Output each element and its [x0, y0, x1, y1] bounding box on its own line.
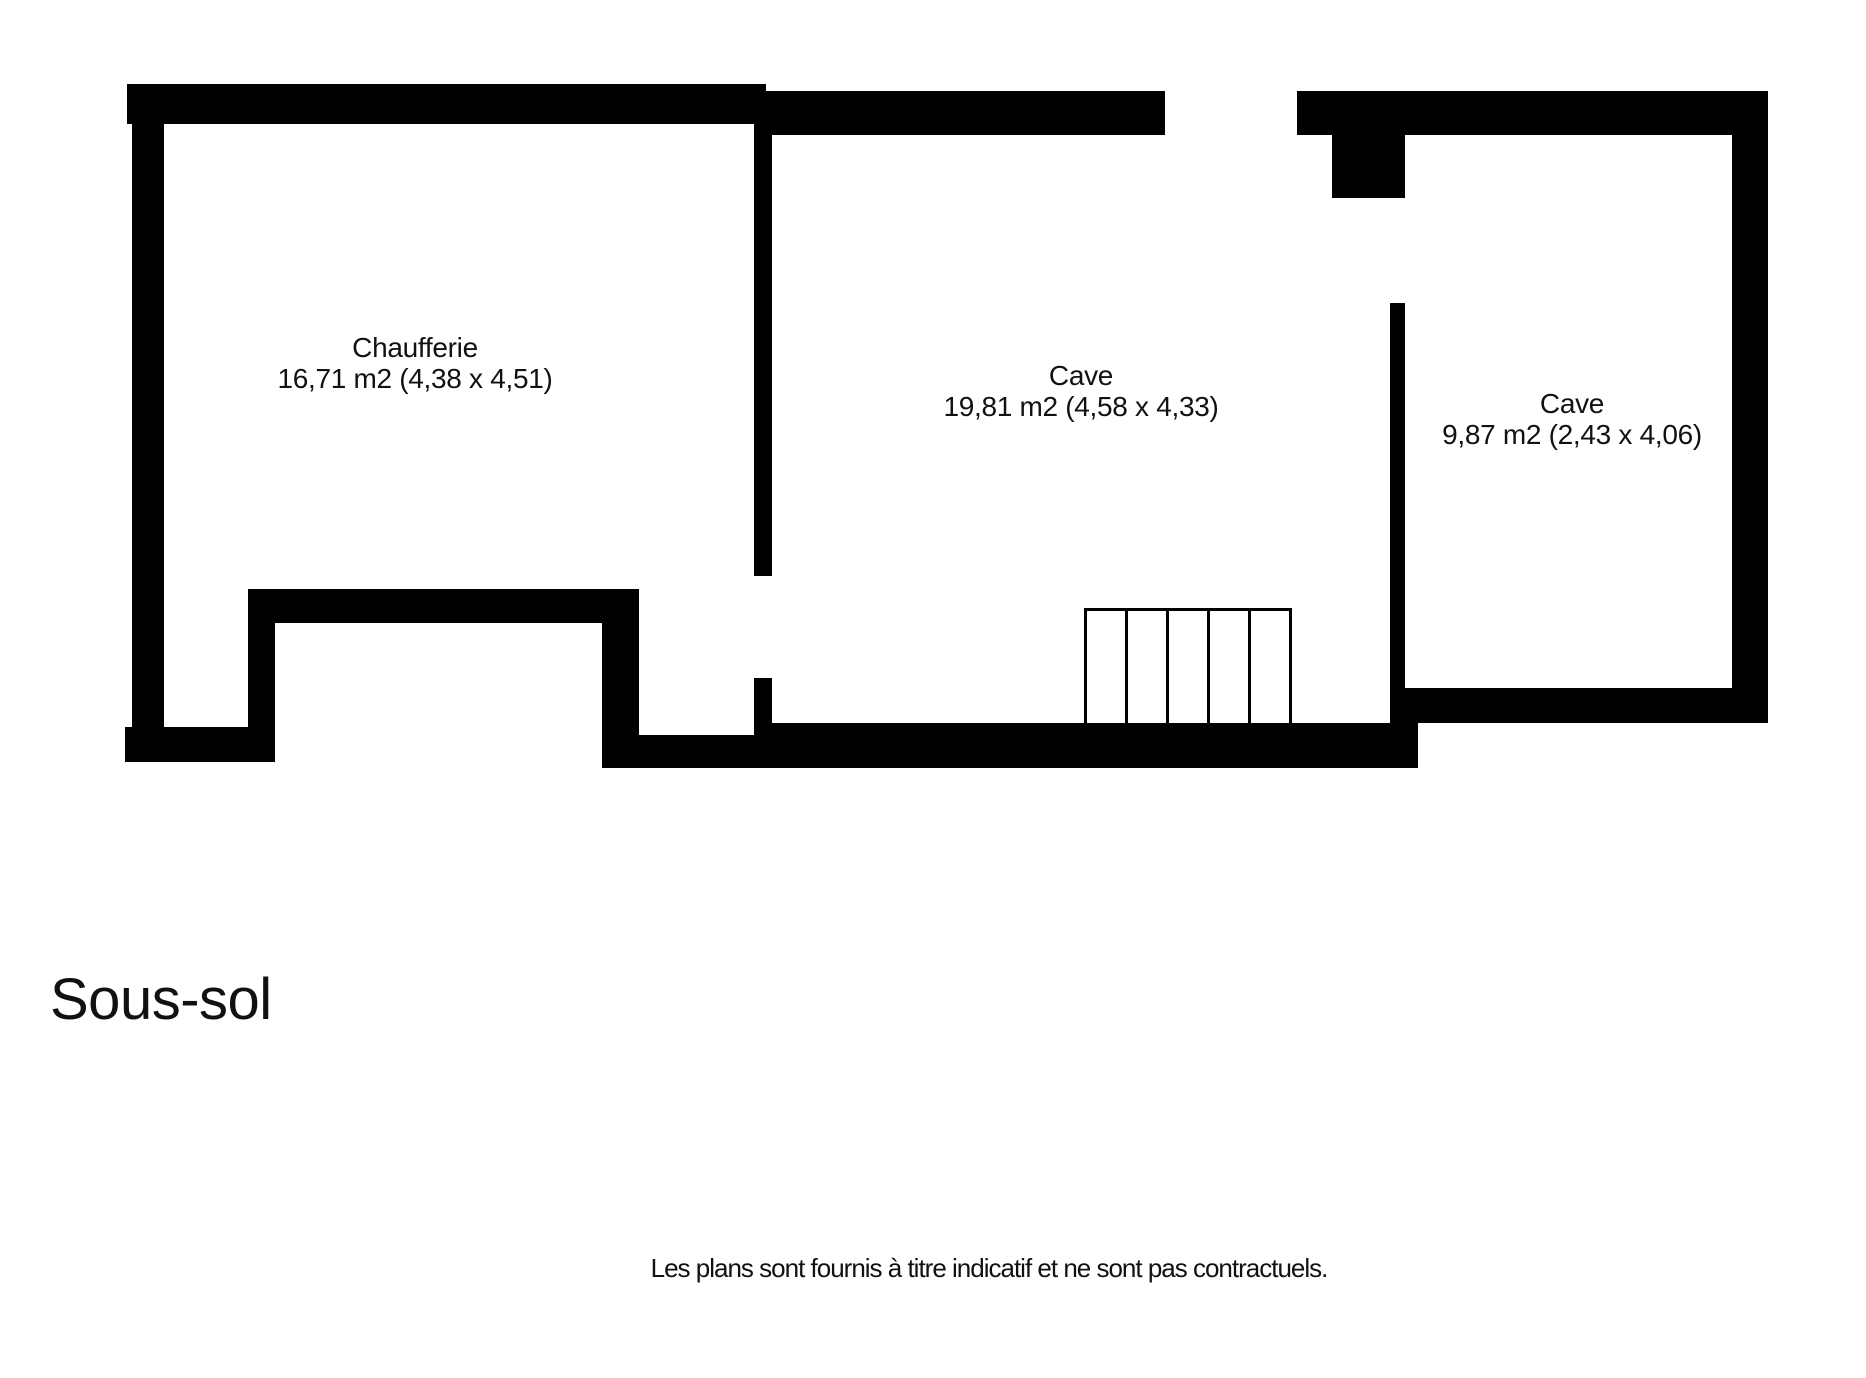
wall-chaufferie-bottom — [248, 589, 639, 623]
room-size: 9,87 m2 (2,43 x 4,06) — [1442, 419, 1702, 450]
wall-top-cave — [766, 91, 1165, 135]
stairs-step — [1251, 611, 1289, 723]
wall-cave2-bottom — [1390, 688, 1768, 723]
wall-right-outer — [1732, 91, 1768, 723]
disclaimer-text: Les plans sont fournis à titre indicatif… — [651, 1252, 1328, 1284]
floor-title: Sous-sol — [50, 968, 272, 1032]
wall-top-chaufferie — [127, 84, 766, 124]
room-label-chaufferie: Chaufferie 16,71 m2 (4,38 x 4,51) — [277, 332, 552, 394]
wall-chaufferie-leg — [602, 589, 639, 768]
room-size: 19,81 m2 (4,58 x 4,33) — [943, 391, 1218, 422]
wall-divider-chaufferie-cave-lower — [754, 678, 772, 740]
stairs-step — [1210, 611, 1251, 723]
stairs-step — [1087, 611, 1128, 723]
room-label-cave-small: Cave 9,87 m2 (2,43 x 4,06) — [1442, 388, 1702, 450]
wall-step-block-top-right — [1332, 135, 1405, 198]
room-name: Chaufferie — [277, 332, 552, 363]
stairs-step — [1169, 611, 1210, 723]
wall-bottom-middle-right — [772, 723, 1418, 768]
wall-divider-chaufferie-cave-upper — [754, 124, 772, 576]
stairs — [1084, 608, 1292, 723]
room-label-cave-large: Cave 19,81 m2 (4,58 x 4,33) — [943, 360, 1218, 422]
room-name: Cave — [1442, 388, 1702, 419]
stairs-step — [1128, 611, 1169, 723]
wall-divider-cave-cave — [1390, 303, 1405, 723]
wall-top-right — [1297, 91, 1768, 135]
wall-bottom-middle-left — [639, 735, 772, 768]
room-size: 16,71 m2 (4,38 x 4,51) — [277, 363, 552, 394]
wall-left-outer — [132, 124, 164, 727]
floor-plan-page: Chaufferie 16,71 m2 (4,38 x 4,51) Cave 1… — [0, 0, 1866, 1378]
room-name: Cave — [943, 360, 1218, 391]
